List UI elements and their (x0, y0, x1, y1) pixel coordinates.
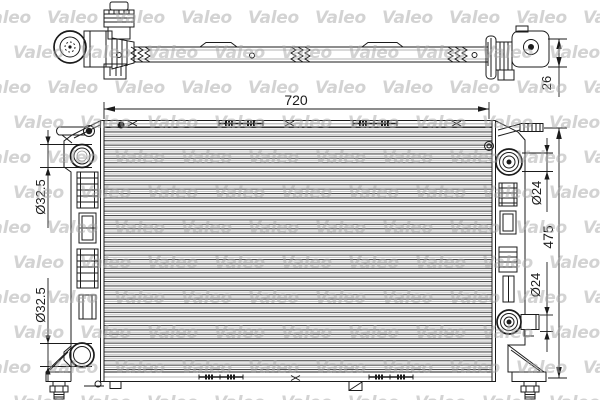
dim-left-upper-port-label: Ø32.5 (33, 179, 48, 214)
right-lower-port-dimension: Ø24 (528, 262, 553, 352)
dim-left-lower-port-label: Ø32.5 (33, 287, 48, 322)
width-dimension: 720 (104, 92, 489, 119)
left-tank-brackets (77, 172, 98, 319)
left-lower-port-dimension: Ø32.5 (33, 278, 92, 382)
depth-dimension: 26 (539, 39, 567, 97)
dim-right-upper-port-label: Ø24 (529, 181, 544, 206)
break-mark (291, 47, 310, 62)
dim-depth-label: 26 (539, 76, 554, 90)
right-tank (485, 121, 547, 399)
break-mark (448, 47, 467, 62)
beam-hole (472, 53, 477, 58)
technical-drawing-page: 26 (0, 0, 600, 400)
left-lower-port (70, 343, 94, 367)
corner-pin (118, 122, 125, 129)
hose-clamp (104, 38, 134, 79)
inlet-housing (54, 31, 112, 67)
top-left-bracket (57, 126, 95, 144)
right-lower-port (497, 310, 539, 336)
filler-neck (104, 2, 134, 39)
header-ticks (219, 121, 263, 126)
footer-ticks (199, 375, 243, 380)
right-tank-brackets (499, 183, 517, 302)
left-upper-port (71, 145, 94, 168)
core-top-beam (117, 42, 489, 66)
front-view-drawing: 720 475 Ø32.5 Ø32.5 (33, 92, 567, 399)
header-ticks (353, 121, 397, 126)
radiator-core (100, 121, 496, 391)
left-tank (46, 121, 104, 399)
left-drain-plug (50, 382, 68, 400)
height-dimension: 475 (540, 128, 567, 378)
top-view-drawing: 26 (54, 2, 567, 97)
radiator-drawing-canvas: 26 (0, 0, 600, 400)
right-end-fitting (486, 26, 549, 80)
dim-width-label: 720 (284, 92, 308, 108)
mounting-tab (362, 43, 403, 48)
right-foot (508, 345, 546, 382)
dim-right-lower-port-label: Ø24 (528, 273, 543, 298)
mounting-tab (200, 43, 237, 48)
footer-ticks (369, 375, 413, 380)
bottom-tab (110, 382, 121, 389)
bottom-tab (349, 382, 362, 391)
dim-height-label: 475 (540, 225, 556, 249)
right-drain-plug (521, 382, 539, 400)
right-upper-port-dimension: Ø24 (522, 138, 553, 212)
beam-hole (250, 53, 255, 58)
